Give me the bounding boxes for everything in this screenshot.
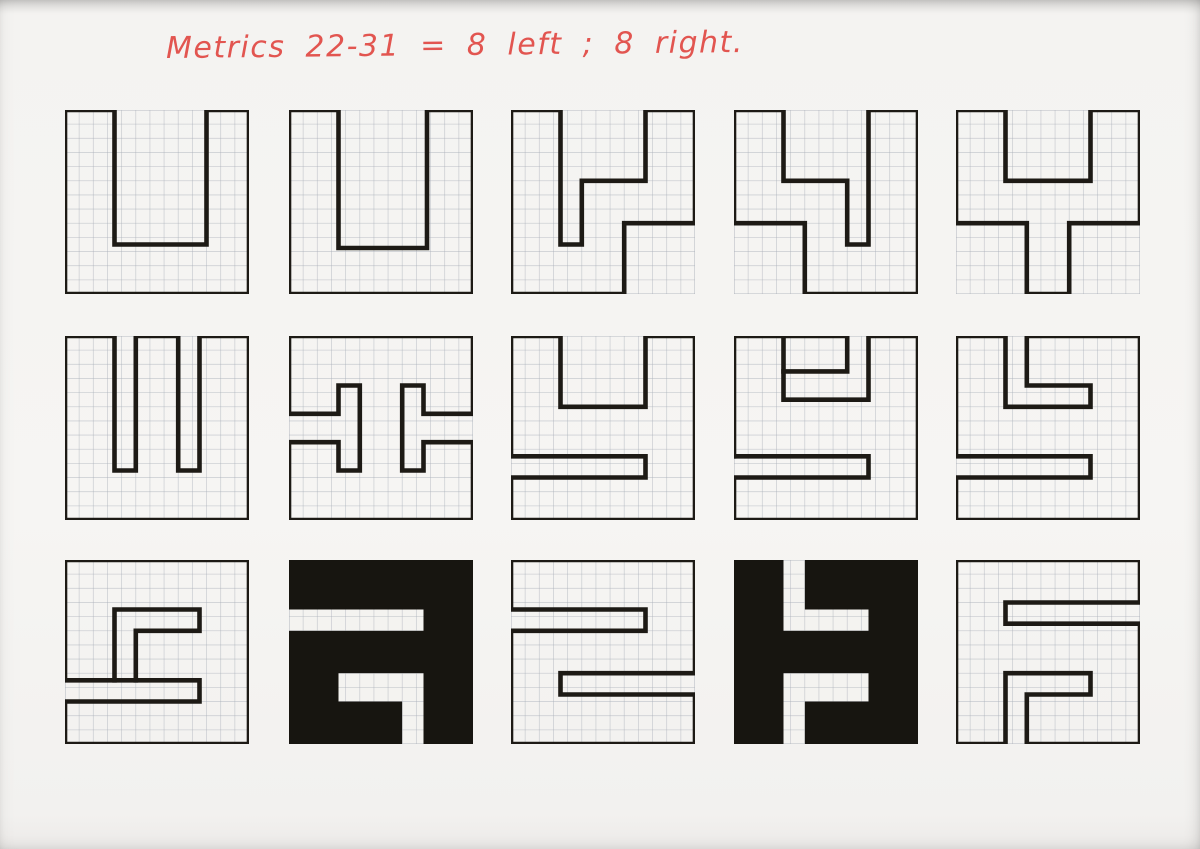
glyph-tile-r1c3-stepped-y-left	[511, 110, 695, 294]
glyph-tile-r2c4-u-left-slot-top-pocket	[734, 336, 918, 520]
glyph-tile-r3c1-spiral-s-slot	[65, 560, 249, 744]
glyph-tile-r3c4-inverted-h-form	[734, 560, 918, 744]
glyph-tile-r1c2-u-notch	[289, 110, 473, 294]
glyph-tile-r1c4-stepped-y-right	[734, 110, 918, 294]
glyph-tile-r2c1-sha-double-notch	[65, 336, 249, 520]
glyph-tile-r1c1-u-wide-notch	[65, 110, 249, 294]
scanned-paper: Metrics 22-31 = 8 left ; 8 right.	[0, 0, 1200, 849]
glyph-tile-r2c5-e-hook-left-slot	[956, 336, 1140, 520]
glyph-tile-r2c2-double-t-side-slots	[289, 336, 473, 520]
glyph-tile-r3c3-z-double-side-slots	[511, 560, 695, 744]
handwritten-note: Metrics 22-31 = 8 left ; 8 right.	[166, 25, 744, 66]
glyph-tile-r2c3-u-with-left-slot	[511, 336, 695, 520]
glyph-tile-r3c2-inverted-spiral-s	[289, 560, 473, 744]
glyph-tile-r1c5-y-center-stem	[956, 110, 1140, 294]
glyph-tile-r3c5-r-hook-slots	[956, 560, 1140, 744]
